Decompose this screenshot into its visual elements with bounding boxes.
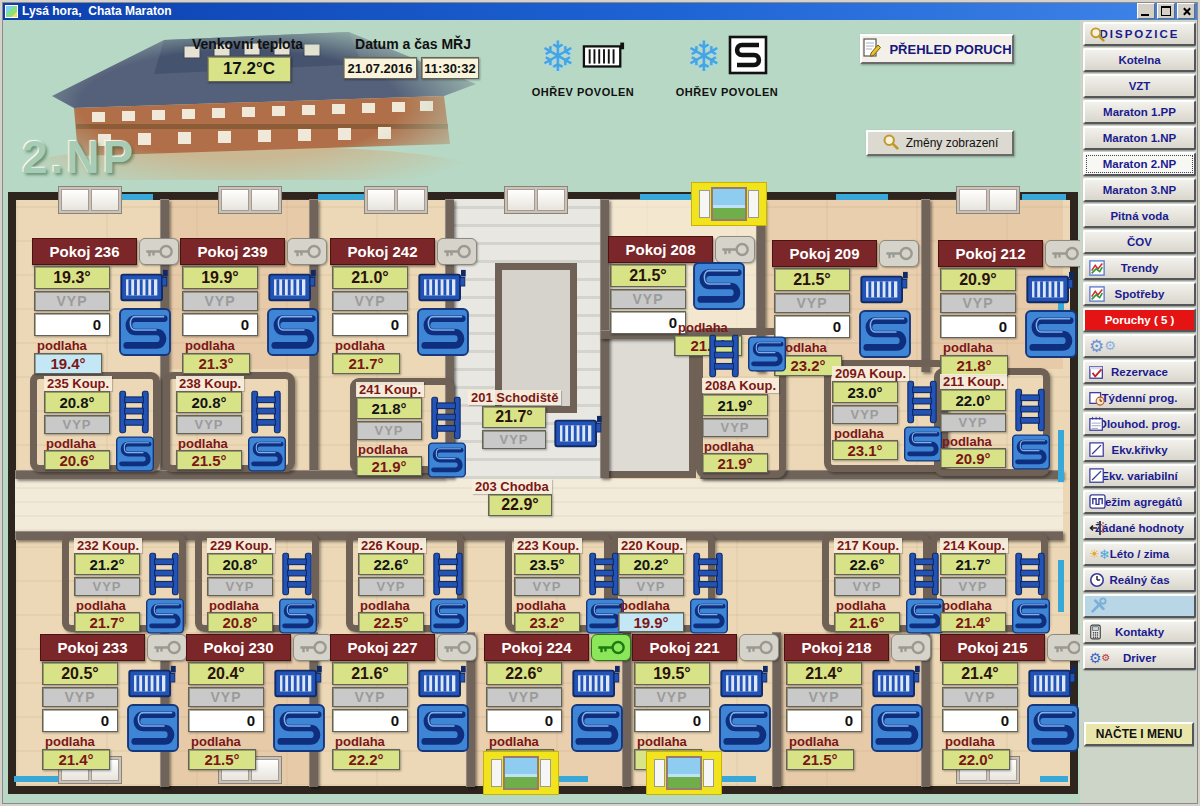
mode-display: VYP	[486, 687, 562, 707]
setpoint-input[interactable]: 0	[182, 313, 258, 336]
bathroom-temperature: 22.0°	[940, 389, 1006, 411]
floor-temperature: 21.5°	[786, 749, 854, 770]
sidebar-item-cov[interactable]: ČOV	[1083, 230, 1196, 254]
sidebar-item-zadane-hodnoty[interactable]: Žádané hodnoty	[1083, 516, 1196, 540]
sidebar-item-dlouhod-prog[interactable]: Dlouhod. prog.	[1083, 412, 1196, 436]
sidebar-item-label: Driver	[1123, 652, 1156, 664]
sidebar-item-pitna-voda[interactable]: Pitná voda	[1083, 204, 1196, 228]
open-window-icon	[692, 183, 766, 225]
mode-display: VYP	[34, 291, 110, 311]
sidebar-item-label: Maraton 1.NP	[1103, 132, 1177, 144]
bathroom-temperature: 20.8°	[44, 391, 110, 413]
corridor-title: 203 Chodba	[472, 479, 552, 494]
sidebar-item-leto-zima[interactable]: ☀❄Léto / zima	[1083, 542, 1196, 566]
mode-display: VYP	[940, 413, 1006, 432]
key-icon[interactable]	[437, 238, 477, 265]
setpoint-input[interactable]: 0	[332, 709, 408, 732]
room-title: Pokoj 221	[632, 634, 737, 661]
driver-icon: ⚙⚙	[1089, 652, 1111, 664]
floor-coil-icon	[118, 308, 172, 360]
radiator-icon	[554, 414, 604, 454]
sidebar-item-maraton-3np[interactable]: Maraton 3.NP	[1083, 178, 1196, 202]
radiator-icon	[274, 664, 324, 704]
floor-coil-icon	[870, 704, 924, 756]
sidebar-item-tydenni-prog[interactable]: Týdenní prog.	[1083, 386, 1196, 410]
towel-ladder-icon	[908, 552, 940, 600]
key-icon[interactable]	[287, 238, 327, 265]
fault-overview-label: PŘEHLED PORUCH	[889, 42, 1011, 57]
sidebar-item-ekv-variabilni[interactable]: Ekv. variabilní	[1083, 464, 1196, 488]
sidebar-item-label: Dlouhod. prog.	[1099, 418, 1181, 430]
room-title: Pokoj 208	[608, 236, 713, 263]
floor-temp-label: podlaha	[37, 338, 87, 353]
sidebar-item-label: Spotřeby	[1115, 288, 1165, 300]
floor-temperature: 21.5°	[188, 749, 256, 770]
towel-ladder-icon	[692, 552, 724, 600]
floor-temp-label: podlaha	[942, 598, 992, 613]
room-temperature: 22.6°	[486, 662, 562, 685]
sidebar-item-label: Pitná voda	[1110, 210, 1168, 222]
mode-display: VYP	[332, 291, 408, 311]
key-icon[interactable]	[139, 238, 179, 265]
key-icon[interactable]	[293, 634, 333, 661]
bathroom-panel-235: 235 Koup.20.8°VYPpodlaha20.6°	[44, 376, 156, 472]
mode-display: VYP	[207, 577, 273, 596]
corridor-panel: 203 Chodba22.9°	[472, 479, 592, 519]
room-panel-pokoj-242: Pokoj 24221.0°VYP0podlaha21.7°	[330, 238, 476, 375]
sidebar-item-label: Trendy	[1121, 262, 1159, 274]
mode-display: VYP	[482, 430, 546, 449]
key-icon[interactable]	[437, 634, 477, 661]
radiator-icon	[418, 268, 468, 308]
floor-coil-icon	[1012, 598, 1050, 638]
setpoint-input[interactable]: 0	[188, 709, 264, 732]
setpoint-input[interactable]: 0	[610, 311, 686, 334]
snowflake-icon: ❄	[686, 36, 721, 78]
room-title: Pokoj 242	[330, 238, 435, 265]
floor-coil-icon	[416, 308, 470, 360]
room-title: Pokoj 230	[186, 634, 291, 661]
floor-temperature: 21.4°	[42, 749, 110, 770]
bathroom-panel-209A: 209A Koup.23.0°VYPpodlaha23.1°	[832, 366, 944, 462]
floor-temperature: 21.5°	[176, 450, 242, 470]
key-icon-green[interactable]	[591, 634, 631, 661]
setpoint-input[interactable]: 0	[486, 709, 562, 732]
sidebar-item-maraton-1np[interactable]: Maraton 1.NP	[1083, 126, 1196, 150]
radiator-icon	[128, 664, 178, 704]
sidebar-item-label: Žádané hodnoty	[1095, 522, 1184, 534]
sidebar-item-trendy[interactable]: Trendy	[1083, 256, 1196, 280]
radiator-heating-status: ❄ OHŘEV POVOLEN	[522, 30, 644, 98]
floor-temp-label: podlaha	[360, 598, 410, 613]
floor-temp-label: podlaha	[834, 426, 884, 441]
floor-temperature: 20.8°	[207, 612, 273, 632]
close-button[interactable]	[1177, 3, 1195, 19]
mode-display: VYP	[618, 577, 684, 596]
mode-display: VYP	[832, 405, 898, 424]
sidebar-item-rezervace[interactable]: Rezervace	[1083, 360, 1196, 384]
chart-icon	[1089, 286, 1105, 302]
floor-label: 2.NP	[22, 130, 136, 184]
sidebar-item-label: ČOV	[1127, 236, 1152, 248]
floor-temperature: 21.9°	[702, 453, 768, 473]
floor-temp-label: podlaha	[45, 734, 95, 749]
floor-coil-icon	[718, 704, 772, 756]
floor-temp-label: podlaha	[704, 439, 754, 454]
staircase-title: 201 Schodiště	[468, 390, 561, 405]
window-symbol	[218, 186, 282, 214]
room-panel-pokoj-215: Pokoj 21521.4°VYP0podlaha22.0°	[940, 634, 1086, 771]
sidebar-item-driver[interactable]: ⚙⚙Driver	[1083, 646, 1196, 670]
floor-temp-label: podlaha	[516, 598, 566, 613]
room-temperature: 20.4°	[188, 662, 264, 685]
mode-display: VYP	[702, 418, 768, 437]
floor-coil-icon	[1012, 434, 1050, 474]
setpoint-input[interactable]: 0	[634, 709, 710, 732]
wall-radiator-line	[1040, 776, 1068, 782]
setpoint-input[interactable]: 0	[332, 313, 408, 336]
load-menu-button[interactable]: NAČTE I MENU	[1084, 722, 1194, 746]
change-view-button[interactable]: Změny zobrazení	[866, 130, 1014, 156]
floor-temp-label: podlaha	[358, 442, 408, 457]
floor-coil-icon	[858, 310, 912, 362]
sidebar-item-maraton-2np[interactable]: Maraton 2.NP	[1083, 152, 1196, 176]
radiator-icon	[1026, 270, 1076, 310]
floor-coil-icon	[146, 598, 184, 638]
floor-coil-icon	[279, 598, 317, 638]
magnifier-icon	[1089, 26, 1105, 42]
datetime-label: Datum a čas MŘJ	[350, 36, 476, 52]
mode-display: VYP	[356, 421, 422, 440]
room-temperature: 19.5°	[634, 662, 710, 685]
room-panel-pokoj-221: Pokoj 22119.5°VYP0podlaha20.2°	[632, 634, 778, 771]
radiator-icon	[120, 268, 170, 308]
sidebar-item-label: Rezervace	[1111, 366, 1168, 378]
bathroom-title: 229 Koup.	[207, 538, 275, 553]
towel-ladder-icon	[588, 552, 620, 600]
bathroom-panel-217: 217 Koup.22.6°VYPpodlaha21.6°	[834, 538, 946, 634]
bathroom-panel-238: 238 Koup.20.8°VYPpodlaha21.5°	[176, 376, 288, 472]
mode-display: VYP	[514, 577, 580, 596]
floor-coil-icon	[248, 436, 286, 476]
floor-temp-label: podlaha	[76, 598, 126, 613]
setpoint-input[interactable]: 0	[786, 709, 862, 732]
room-temperature: 19.3°	[34, 266, 110, 289]
bathroom-temperature: 21.9°	[702, 394, 768, 416]
wall-radiator-line	[836, 194, 888, 200]
bathroom-title: 209A Koup.	[832, 366, 909, 381]
sidebar-item-maraton-1pp[interactable]: Maraton 1.PP	[1083, 100, 1196, 124]
bathroom-temperature: 21.2°	[74, 553, 140, 575]
room-temperature: 19.9°	[182, 266, 258, 289]
floor-coil-icon	[690, 598, 728, 638]
room-panel-pokoj-218: Pokoj 21821.4°VYP0podlaha21.5°	[784, 634, 930, 771]
bathroom-temperature: 21.7°	[940, 553, 1006, 575]
mode-display: VYP	[358, 577, 424, 596]
bathroom-title: 241 Koup.	[356, 382, 424, 397]
curve-icon	[1089, 442, 1105, 458]
slider-icon	[1089, 520, 1105, 536]
room-temperature: 21.0°	[332, 266, 408, 289]
radiator-icon	[418, 664, 468, 704]
gears-icon: ⚙⚙	[1089, 340, 1116, 352]
wall-radiator-line	[640, 194, 698, 200]
staircase-temperature: 21.7°	[482, 406, 546, 428]
minimize-button[interactable]	[1137, 3, 1155, 19]
key-icon[interactable]	[1045, 240, 1085, 267]
room-panel-pokoj-227: Pokoj 22721.6°VYP0podlaha22.2°	[330, 634, 476, 771]
sidebar-item-kontakty[interactable]: Kontakty	[1083, 620, 1196, 644]
floor-heating-label: OHŘEV POVOLEN	[666, 86, 788, 98]
floor-coil-icon	[430, 598, 468, 638]
floor-temperature: 21.3°	[182, 353, 250, 374]
window-title: Lysá hora, Chata Maraton	[22, 4, 1137, 18]
outdoor-temp-value: 17.2°C	[207, 56, 291, 82]
sidebar-item-label: Režim agregátů	[1097, 496, 1183, 508]
window-symbol	[58, 186, 122, 214]
room-temperature: 20.9°	[940, 268, 1016, 291]
sidebar-item-label: Kotelna	[1118, 54, 1160, 66]
mode-display: VYP	[44, 415, 110, 434]
floor-temp-label: podlaha	[335, 338, 385, 353]
sidebar-item-realny-cas[interactable]: Reálný čas	[1083, 568, 1196, 592]
bathroom-panel-220: 220 Koup.20.2°VYPpodlaha19.9°	[618, 538, 730, 634]
floor-temp-label: podlaha	[185, 338, 235, 353]
sidebar-item-label: Léto / zima	[1110, 548, 1169, 560]
open-window-icon	[484, 752, 558, 794]
floor-temp-label: podlaha	[209, 598, 259, 613]
bathroom-title: 226 Koup.	[358, 538, 426, 553]
floor-coil-icon	[1024, 310, 1078, 362]
sidebar-item-label: Kontakty	[1115, 626, 1164, 638]
phone-icon	[1089, 624, 1102, 640]
towel-ladder-icon	[906, 380, 938, 428]
window-symbol	[956, 186, 1020, 214]
room-title: Pokoj 218	[784, 634, 889, 661]
bathroom-panel-241: 241 Koup.21.8°VYPpodlaha21.9°	[356, 382, 468, 478]
bathroom-temperature: 22.6°	[358, 553, 424, 575]
floor-temp-label: podlaha	[945, 734, 995, 749]
floor-temperature: 20.9°	[940, 448, 1006, 468]
floor-temperature: 19.9°	[618, 612, 684, 632]
sidebar-item-label: DISPOZICE	[1100, 28, 1180, 40]
window-symbol	[504, 186, 568, 214]
floor-coil-icon	[692, 262, 746, 314]
sidebar-item-vzt[interactable]: VZT	[1083, 74, 1196, 98]
radiator-icon	[860, 270, 910, 310]
floor-coil-icon	[570, 704, 624, 756]
bathroom-temperature: 20.8°	[207, 553, 273, 575]
floor-temp-label: podlaha	[620, 598, 670, 613]
sidebar-item-label: Ekv. variabilní	[1101, 470, 1178, 482]
key-icon[interactable]	[715, 236, 755, 263]
cal-icon	[1089, 416, 1105, 432]
sidebar-item-poruchy[interactable]: Poruchy ( 5 )	[1083, 308, 1196, 332]
room-temperature: 21.6°	[332, 662, 408, 685]
mode-display: VYP	[940, 577, 1006, 596]
towel-ladder-icon	[1014, 552, 1046, 600]
wall-radiator-line	[1058, 430, 1064, 482]
sidebar-item-label: Poruchy ( 5 )	[1105, 314, 1175, 326]
floor-temperature: 21.4°	[940, 612, 1006, 632]
key-icon[interactable]	[739, 634, 779, 661]
sidebar-item-servis[interactable]	[1083, 594, 1196, 618]
floor-coil-icon	[116, 436, 154, 476]
room-panel-pokoj-224: Pokoj 22422.6°VYP0podlaha22.5°	[484, 634, 630, 771]
floor-temp-label: podlaha	[637, 734, 687, 749]
towel-ladder-icon	[708, 334, 740, 382]
wall	[921, 199, 930, 372]
sidebar-item-label: Maraton 2.NP	[1103, 158, 1177, 170]
bathroom-panel-214: 214 Koup.21.7°VYPpodlaha21.4°	[940, 538, 1052, 634]
sidebar-item-kotelna[interactable]: Kotelna	[1083, 48, 1196, 72]
floor-temperature: 21.9°	[356, 456, 422, 476]
sidebar-item-dispozice[interactable]: DISPOZICE	[1083, 22, 1196, 46]
bathroom-title: 214 Koup.	[940, 538, 1008, 553]
bathroom-panel-229: 229 Koup.20.8°VYPpodlaha20.8°	[207, 538, 319, 634]
floor-temp-label: podlaha	[335, 734, 385, 749]
mode-display: VYP	[774, 293, 850, 313]
date-value: 21.07.2016	[343, 57, 417, 79]
floor-temperature: 20.6°	[44, 450, 110, 470]
change-view-label: Změny zobrazení	[906, 136, 999, 150]
bathroom-title: 232 Koup.	[74, 538, 142, 553]
bathroom-panel-208A: 208A Koup.21.9°VYPpodlaha21.9°	[702, 334, 814, 474]
floor-temperature: 23.2°	[514, 612, 580, 632]
floor-temp-label: podlaha	[46, 436, 96, 451]
room-title: Pokoj 224	[484, 634, 589, 661]
sidebar-item-label: Reálný čas	[1109, 574, 1169, 586]
bathroom-title: 223 Koup.	[514, 538, 582, 553]
towel-ladder-icon	[1014, 388, 1046, 436]
room-temperature: 21.4°	[942, 662, 1018, 685]
room-temperature: 20.5°	[42, 662, 118, 685]
setpoint-input[interactable]: 0	[940, 315, 1016, 338]
floor-temp-label: podlaha	[678, 320, 728, 335]
floor-temp-label: podlaha	[191, 734, 241, 749]
room-panel-pokoj-236: Pokoj 23619.3°VYP0podlaha19.4°	[32, 238, 178, 375]
report-icon	[862, 38, 882, 61]
towel-ladder-icon	[430, 396, 462, 444]
floor-coil-icon	[1026, 704, 1080, 756]
room-temperature: 21.5°	[774, 268, 850, 291]
floor-temp-label: podlaha	[789, 734, 839, 749]
bathroom-panel-223: 223 Koup.23.5°VYPpodlaha23.2°	[514, 538, 626, 634]
towel-ladder-icon	[432, 552, 464, 600]
sidebar: NAČTE I MENU DISPOZICEKotelnaVZTMaraton …	[1080, 0, 1200, 806]
tools-icon	[1089, 597, 1107, 615]
magnifier-icon	[882, 133, 899, 153]
sidebar-item-label: Týdenní prog.	[1101, 392, 1177, 404]
floor-coil-icon	[272, 704, 326, 756]
bathroom-temperature: 23.0°	[832, 381, 898, 403]
floor-temp-label: podlaha	[943, 340, 993, 355]
chart-icon	[1089, 260, 1105, 276]
floor-temperature: 22.2°	[332, 749, 400, 770]
floor-temperature: 21.7°	[74, 612, 140, 632]
room-temperature: 21.5°	[610, 264, 686, 287]
room-title: Pokoj 212	[938, 240, 1043, 267]
room-temperature: 21.4°	[786, 662, 862, 685]
floor-coil-icon	[428, 442, 466, 482]
fault-overview-button[interactable]: PŘEHLED PORUCH	[860, 34, 1014, 64]
mode-display: VYP	[332, 687, 408, 707]
wall-radiator-line	[318, 194, 370, 200]
sidebar-item-label: Maraton 3.NP	[1103, 184, 1177, 196]
time-value: 11:30:32	[421, 57, 479, 79]
room-title: Pokoj 233	[40, 634, 145, 661]
setpoint-input[interactable]: 0	[42, 709, 118, 732]
key-icon[interactable]	[879, 240, 919, 267]
app-icon	[5, 5, 18, 18]
floor-temp-label: podlaha	[489, 734, 539, 749]
floor-coil-icon	[906, 598, 944, 638]
room-title: Pokoj 239	[180, 238, 285, 265]
floor-temperature: 21.7°	[332, 353, 400, 374]
agregat-icon	[1089, 494, 1106, 510]
towel-ladder-icon	[118, 390, 150, 438]
mode-display: VYP	[74, 577, 140, 596]
floor-temp-label: podlaha	[178, 436, 228, 451]
maximize-button[interactable]	[1157, 3, 1175, 19]
bathroom-panel-211: 211 Koup.22.0°VYPpodlaha20.9°	[940, 374, 1052, 470]
floor-coil-outline-icon	[728, 35, 768, 79]
mode-display: VYP	[834, 577, 900, 596]
outdoor-temp-label: Venkovní teplota	[185, 36, 310, 52]
floor-temperature: 21.6°	[834, 612, 900, 632]
room-panel-pokoj-239: Pokoj 23919.9°VYP0podlaha21.3°	[180, 238, 326, 375]
floor-coil-icon	[748, 336, 786, 376]
bathroom-temperature: 20.8°	[176, 391, 242, 413]
room-panel-pokoj-230: Pokoj 23020.4°VYP0podlaha21.5°	[186, 634, 332, 771]
sidebar-item-ekv-krivky[interactable]: Ekv.křivky	[1083, 438, 1196, 462]
mode-display: VYP	[176, 415, 242, 434]
floor-coil-icon	[416, 704, 470, 756]
bathroom-title: 217 Koup.	[834, 538, 902, 553]
bathroom-title: 238 Koup.	[176, 376, 244, 391]
key-icon[interactable]	[147, 634, 187, 661]
mode-display: VYP	[940, 293, 1016, 313]
mode-display: VYP	[42, 687, 118, 707]
towel-ladder-icon	[281, 552, 313, 600]
sidebar-item-rezim-agregatu[interactable]: Režim agregátů	[1083, 490, 1196, 514]
floor-heating-status: ❄ OHŘEV POVOLEN	[666, 30, 788, 98]
mode-display: VYP	[182, 291, 258, 311]
mode-display: VYP	[786, 687, 862, 707]
bathroom-title: 235 Koup.	[44, 376, 112, 391]
radiator-heating-label: OHŘEV POVOLEN	[522, 86, 644, 98]
sidebar-item-label: Maraton 1.PP	[1103, 106, 1176, 118]
setpoint-input[interactable]: 0	[34, 313, 110, 336]
open-window-icon	[647, 752, 721, 794]
radiator-icon	[268, 268, 318, 308]
floor-temperature: 19.4°	[34, 353, 102, 374]
floor-temperature: 22.0°	[942, 749, 1010, 770]
setpoint-input[interactable]: 0	[942, 709, 1018, 732]
floor-temperature: 22.5°	[358, 612, 424, 632]
key-icon[interactable]	[891, 634, 931, 661]
bathroom-temperature: 20.2°	[618, 553, 684, 575]
sidebar-item-spotreby[interactable]: Spotřeby	[1083, 282, 1196, 306]
sidebar-item-nastaveni[interactable]: ⚙⚙	[1083, 334, 1196, 358]
sidebar-item-label: VZT	[1129, 80, 1151, 92]
room-title: Pokoj 236	[32, 238, 137, 265]
towel-ladder-icon	[250, 390, 282, 438]
bathroom-panel-232: 232 Koup.21.2°VYPpodlaha21.7°	[74, 538, 186, 634]
cal-check-icon	[1089, 364, 1105, 380]
room-title: Pokoj 215	[940, 634, 1045, 661]
floor-coil-icon	[266, 308, 320, 360]
